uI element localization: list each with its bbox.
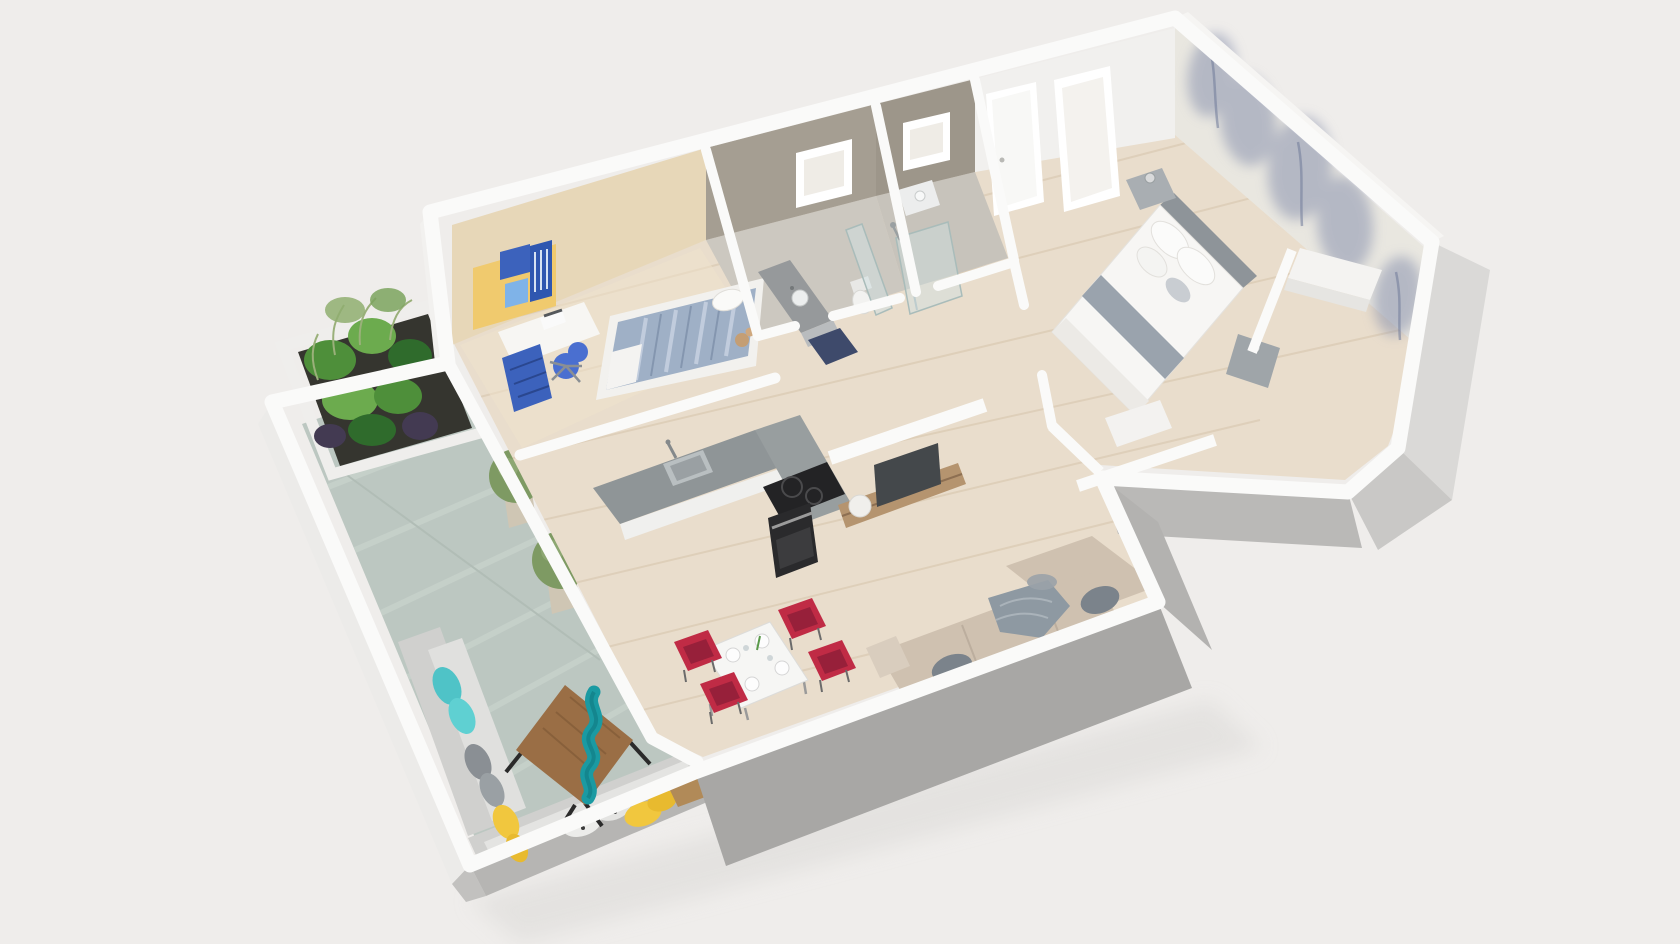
vase bbox=[849, 495, 871, 517]
laundry-cloth bbox=[1027, 574, 1057, 590]
bedroom-tall-window bbox=[1054, 66, 1120, 212]
faucet bbox=[790, 286, 794, 290]
door-handle bbox=[1000, 158, 1005, 163]
vanity-sink-basin bbox=[915, 191, 925, 201]
floorplan-svg bbox=[0, 0, 1680, 944]
sink-basin bbox=[792, 290, 808, 306]
floorplan-render bbox=[0, 0, 1680, 944]
table-lamp bbox=[1145, 173, 1155, 183]
